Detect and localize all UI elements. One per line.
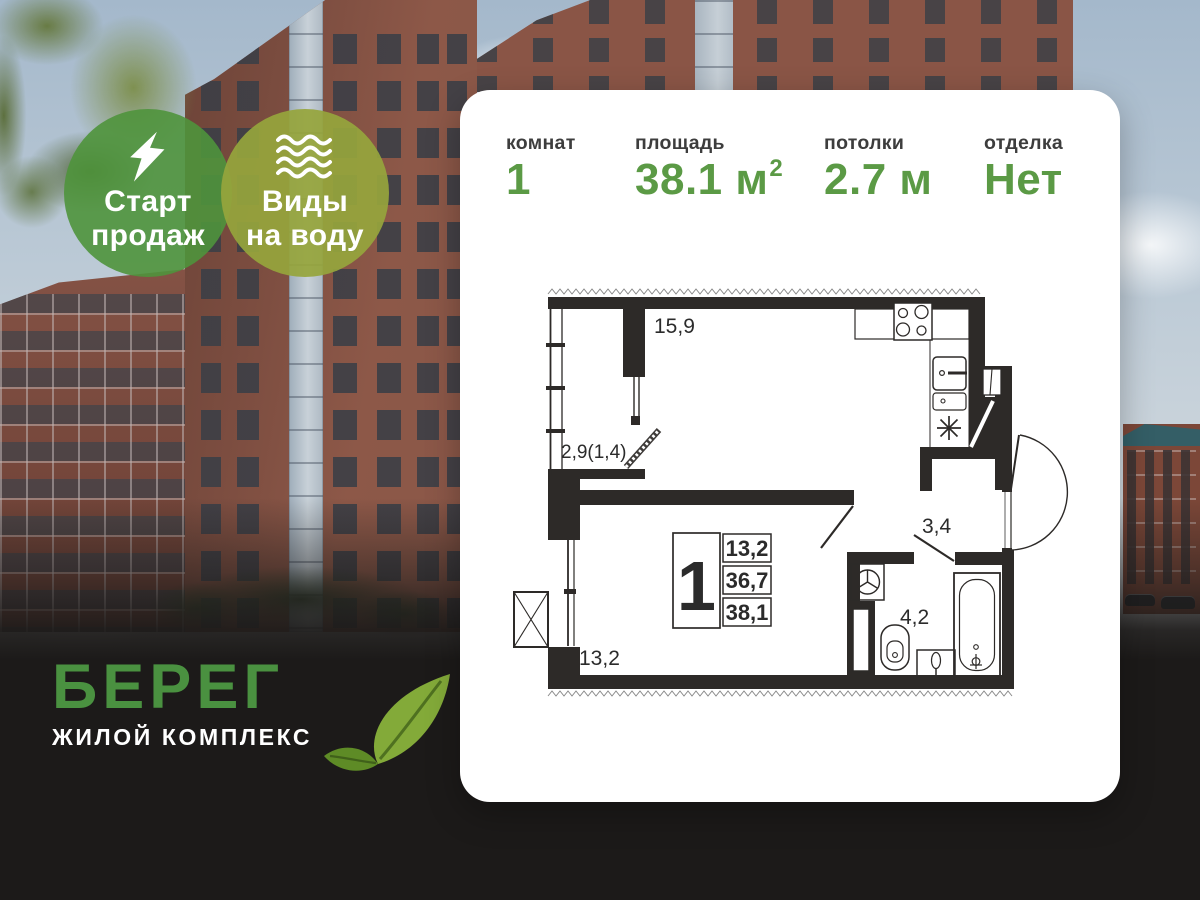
stat-label: площадь (635, 132, 782, 155)
wall-hatch (548, 691, 1012, 696)
promo-banner: Старт продаж Виды на воду БЕРЕГ ЖИЛОЙ КО… (0, 0, 1200, 900)
stat-value: 38.1 м2 (635, 157, 782, 203)
stat-value: 1 (506, 157, 576, 203)
roof (1123, 424, 1200, 446)
lightning-icon (64, 129, 232, 185)
badge-sales-start: Старт продаж (64, 109, 232, 277)
stat-value: Нет (984, 157, 1063, 203)
floor-plan: 1 13,2 36,7 38,1 15,9 2,9(1,4) 13,2 3,4 … (502, 282, 1082, 702)
stat-area: площадь 38.1 м2 (635, 132, 782, 203)
room-label-kitchen: 15,9 (654, 315, 695, 338)
info-box-living-area: 13,2 (726, 536, 769, 561)
info-box-area: 36,7 (726, 568, 769, 593)
badge-label: на воду (221, 219, 389, 253)
badge-label: продаж (64, 219, 232, 253)
room-label-bathroom: 4,2 (900, 606, 929, 629)
plan-info-box: 1 13,2 36,7 38,1 (673, 533, 771, 628)
wall-hatch (548, 289, 980, 294)
stat-rooms: комнат 1 (506, 132, 576, 203)
waves-icon (221, 129, 389, 185)
stat-label: отделка (984, 132, 1063, 155)
glass-corner (695, 0, 733, 92)
stove-icon (894, 303, 932, 340)
stat-finishing: отделка Нет (984, 132, 1063, 203)
room-label-balcony: 2,9(1,4) (561, 442, 626, 463)
vent-niche (983, 369, 1001, 395)
plan-walls (548, 297, 1014, 689)
info-box-rooms: 1 (677, 547, 716, 625)
main-building-top (477, 0, 1073, 92)
apartment-card: комнат 1 площадь 38.1 м2 потолки 2.7 м о… (460, 90, 1120, 802)
badge-label: Виды (221, 185, 389, 219)
stat-ceiling: потолки 2.7 м (824, 132, 932, 203)
stat-label: потолки (824, 132, 932, 155)
balcony-door (626, 377, 659, 467)
kitchen-sink-icon (933, 357, 967, 410)
info-box-total-area: 38,1 (726, 600, 769, 625)
leaf-icon (316, 672, 456, 782)
bathtub-icon (954, 573, 1000, 677)
room-window (564, 540, 576, 646)
room-door-leaf (821, 506, 853, 548)
toilet-icon (881, 625, 909, 670)
bathroom-door-leaf (914, 535, 954, 561)
fridge-icon (937, 416, 961, 440)
stat-value: 2.7 м (824, 157, 932, 203)
exterior-shaft (514, 592, 548, 647)
bathroom-door-panel (853, 609, 869, 671)
badge-label: Старт (64, 185, 232, 219)
room-label-room: 13,2 (579, 647, 620, 670)
stat-label: комнат (506, 132, 576, 155)
room-label-hall: 3,4 (922, 515, 952, 538)
bathroom-sink-icon (917, 650, 955, 677)
logo: БЕРЕГ ЖИЛОЙ КОМПЛЕКС (52, 656, 472, 786)
badge-water-views: Виды на воду (221, 109, 389, 277)
